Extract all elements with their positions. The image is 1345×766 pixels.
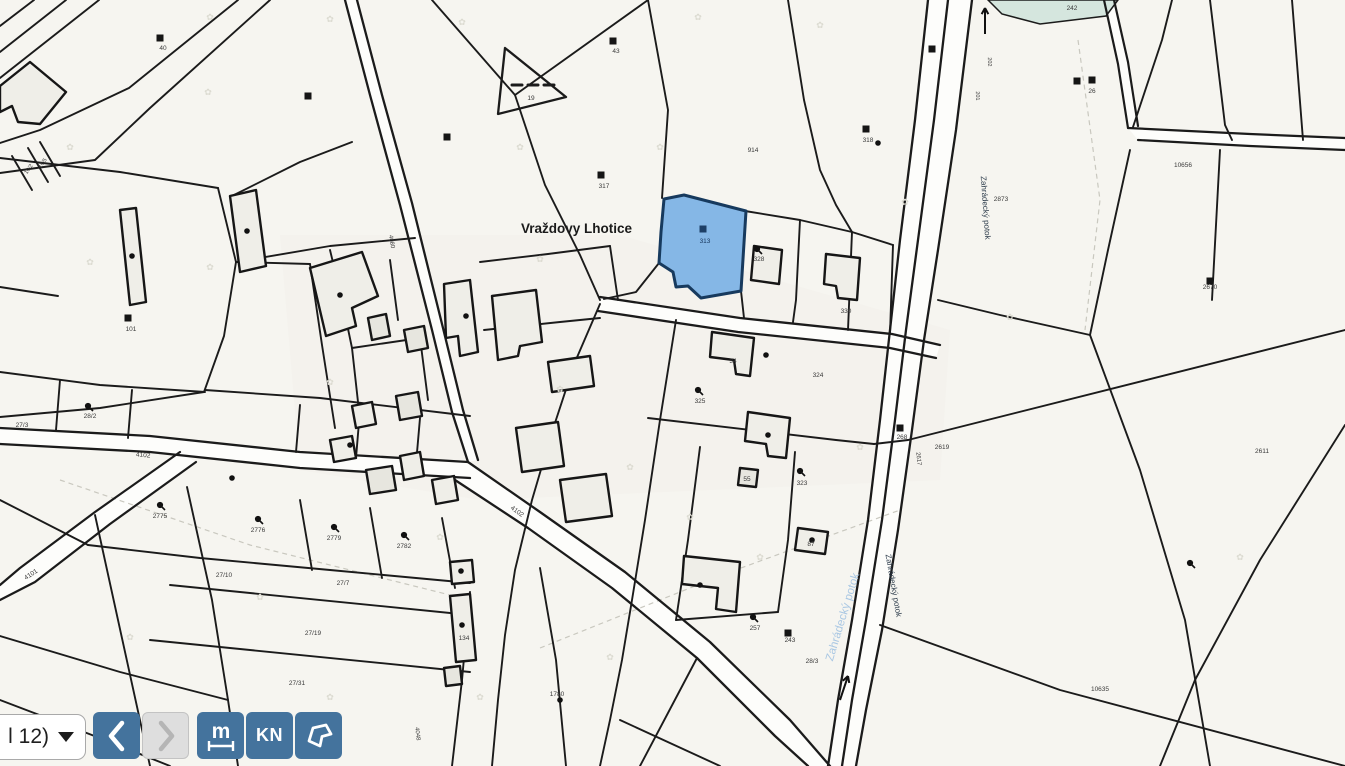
map-label: 19 — [527, 95, 535, 102]
svg-text:✿: ✿ — [256, 592, 264, 602]
svg-text:✿: ✿ — [756, 552, 764, 562]
map-label: 317 — [599, 183, 610, 190]
svg-text:✿: ✿ — [516, 142, 524, 152]
map-label: 28/2 — [84, 413, 97, 420]
map-label: 34 — [729, 358, 737, 365]
chevron-right-icon — [151, 718, 181, 754]
map-label: 202 — [986, 57, 992, 66]
svg-text:✿: ✿ — [626, 462, 634, 472]
building-symbol — [785, 630, 792, 637]
svg-text:✿: ✿ — [1006, 312, 1014, 322]
svg-text:✿: ✿ — [856, 442, 864, 452]
svg-text:m: m — [211, 720, 230, 743]
chevron-left-icon — [102, 718, 132, 754]
svg-text:✿: ✿ — [901, 197, 909, 207]
building-symbol — [125, 315, 132, 322]
svg-text:✿: ✿ — [126, 632, 134, 642]
sheet-select-dropdown[interactable]: l 12) — [0, 714, 86, 760]
pond-layer — [988, 0, 1118, 24]
map-label: 55 — [743, 476, 751, 483]
map-label: 2782 — [397, 543, 412, 550]
map-label: 2779 — [327, 535, 342, 542]
map-label: 325 — [695, 398, 706, 405]
map-label: 313 — [700, 238, 711, 245]
measure-icon: m — [201, 716, 241, 756]
svg-text:✿: ✿ — [326, 377, 334, 387]
map-label: 27/3 — [16, 422, 29, 429]
map-label: 43 — [612, 48, 620, 55]
svg-text:✿: ✿ — [694, 12, 702, 22]
building-symbol — [929, 46, 936, 53]
map-label: 1780 — [550, 691, 565, 698]
measure-button[interactable]: m — [197, 712, 244, 759]
map-label: 40 — [159, 45, 167, 52]
building-symbol — [157, 35, 164, 42]
map-label: 243 — [785, 637, 796, 644]
svg-text:✿: ✿ — [606, 652, 614, 662]
map-label: 26 — [1088, 88, 1096, 95]
map-label: 242 — [1067, 5, 1078, 12]
polygon-icon — [301, 719, 337, 753]
map-label: 101 — [126, 326, 137, 333]
map-label: Zahrádecký potok — [979, 176, 992, 241]
sheet-select-value: l 12) — [8, 725, 49, 749]
svg-text:✿: ✿ — [458, 17, 466, 27]
cadastral-map-viewer: ✿✿✿✿✿✿✿✿✿✿✿✿✿✿✿✿✿✿✿✿✿✿✿✿✿✿✿Vraždovy Lhot… — [0, 0, 1345, 766]
kn-button[interactable]: KN — [246, 712, 293, 759]
svg-text:✿: ✿ — [1236, 552, 1244, 562]
building-symbol — [863, 126, 870, 133]
svg-text:✿: ✿ — [536, 254, 544, 264]
svg-text:✿: ✿ — [326, 14, 334, 24]
map-label: 10635 — [1091, 686, 1109, 693]
map-label: 330 — [841, 308, 852, 315]
svg-text:✿: ✿ — [206, 262, 214, 272]
building-symbol — [1089, 77, 1096, 84]
svg-text:✿: ✿ — [326, 692, 334, 702]
map-label: 2619 — [935, 444, 950, 451]
map-label: 201 — [974, 91, 980, 100]
svg-text:✿: ✿ — [476, 692, 484, 702]
map-label: 324 — [813, 372, 824, 379]
map-label: 2611 — [1255, 448, 1269, 455]
map-label: 268 — [897, 434, 908, 441]
building-symbol — [1074, 78, 1081, 85]
next-button[interactable] — [142, 712, 189, 759]
prev-button[interactable] — [93, 712, 140, 759]
map-label: 2775 — [153, 513, 168, 520]
building-symbol — [305, 93, 312, 100]
building-symbol — [444, 134, 451, 141]
map-label: Vraždovy Lhotice — [521, 221, 633, 236]
building-symbol — [897, 425, 904, 432]
map-label: 27/7 — [337, 580, 350, 587]
building-symbol-selected — [700, 226, 707, 233]
map-label: 914 — [748, 147, 759, 154]
map-label: 134 — [459, 635, 470, 642]
map-label: 27/31 — [289, 680, 306, 687]
map-label: 4102 — [136, 451, 151, 459]
svg-text:✿: ✿ — [686, 512, 694, 522]
map-label: 4048 — [413, 727, 420, 742]
svg-text:✿: ✿ — [556, 384, 564, 394]
map-label: 27/10 — [216, 572, 233, 579]
svg-text:✿: ✿ — [656, 142, 664, 152]
map-label: 328 — [754, 256, 765, 263]
svg-text:✿: ✿ — [204, 87, 212, 97]
map-label: 2776 — [251, 527, 266, 534]
kn-button-label: KN — [256, 725, 283, 746]
svg-text:✿: ✿ — [206, 12, 214, 22]
svg-text:✿: ✿ — [66, 142, 74, 152]
map-label: 323 — [797, 480, 808, 487]
caret-down-icon — [58, 732, 74, 742]
svg-text:✿: ✿ — [86, 257, 94, 267]
map-label: 2670 — [1203, 284, 1218, 291]
map-label: 2873 — [994, 196, 1009, 203]
map-label: 87 — [807, 541, 815, 548]
svg-text:✿: ✿ — [436, 532, 444, 542]
map-label: 10656 — [1174, 162, 1192, 169]
cadastral-map-canvas[interactable]: ✿✿✿✿✿✿✿✿✿✿✿✿✿✿✿✿✿✿✿✿✿✿✿✿✿✿✿Vraždovy Lhot… — [0, 0, 1345, 766]
map-label: 318 — [863, 137, 874, 144]
building-symbol — [598, 172, 605, 179]
draw-parcel-button[interactable] — [295, 712, 342, 759]
building-symbol — [610, 38, 617, 45]
map-label: 28/3 — [806, 658, 819, 665]
map-label: 257 — [750, 625, 761, 632]
svg-text:✿: ✿ — [816, 20, 824, 30]
map-label: 27/19 — [305, 630, 322, 637]
